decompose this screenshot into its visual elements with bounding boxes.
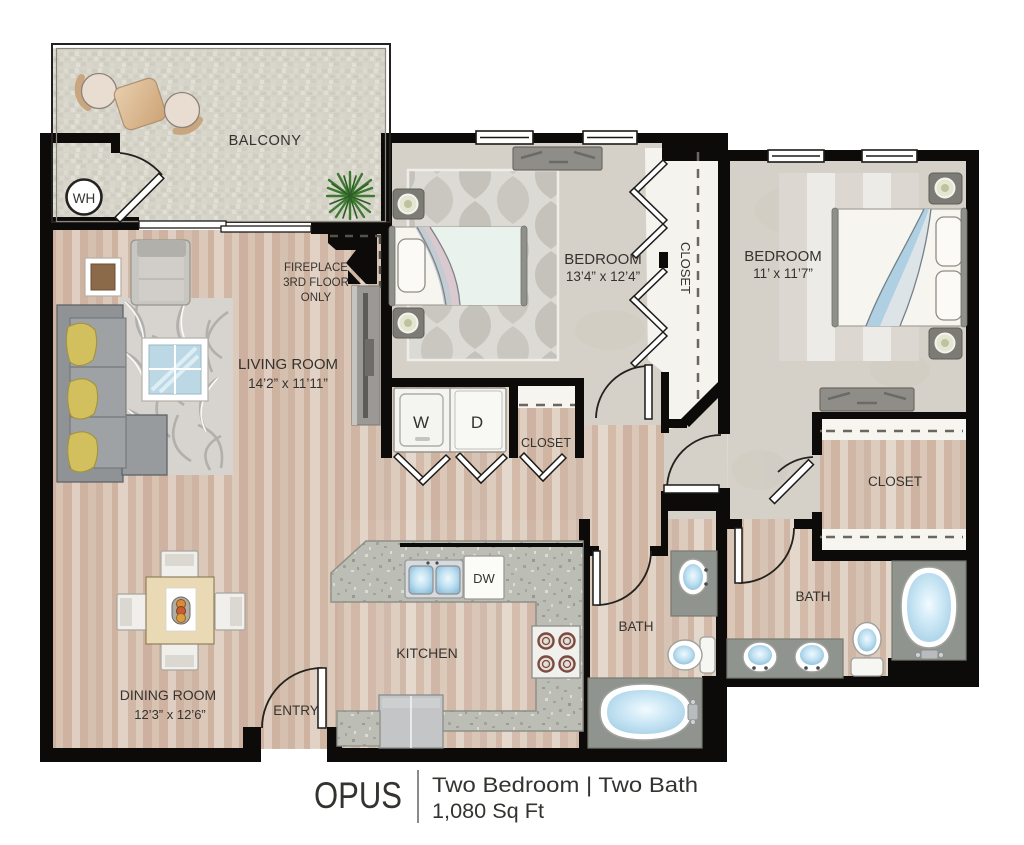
svg-text:BATH: BATH bbox=[618, 619, 653, 634]
svg-text:BEDROOM: BEDROOM bbox=[744, 248, 822, 265]
svg-text:CLOSET: CLOSET bbox=[868, 474, 922, 489]
svg-text:11’ x 11’7”: 11’ x 11’7” bbox=[753, 266, 813, 281]
svg-text:CLOSET: CLOSET bbox=[521, 436, 571, 450]
svg-text:FIREPLACE: FIREPLACE bbox=[284, 262, 348, 274]
svg-text:WH: WH bbox=[73, 191, 96, 206]
svg-text:1,080 Sq Ft: 1,080 Sq Ft bbox=[432, 799, 544, 823]
svg-text:14’2” x 11’11”: 14’2” x 11’11” bbox=[248, 376, 328, 391]
svg-text:BALCONY: BALCONY bbox=[229, 133, 302, 149]
svg-text:Two Bedroom | Two Bath: Two Bedroom | Two Bath bbox=[432, 773, 698, 797]
svg-text:13’4” x 12’4”: 13’4” x 12’4” bbox=[566, 269, 640, 284]
svg-text:CLOSET: CLOSET bbox=[678, 242, 693, 294]
svg-text:DW: DW bbox=[473, 571, 495, 586]
svg-text:OPUS: OPUS bbox=[314, 775, 402, 816]
svg-text:DINING ROOM: DINING ROOM bbox=[120, 687, 216, 703]
svg-text:ONLY: ONLY bbox=[301, 292, 332, 304]
svg-text:W: W bbox=[413, 413, 429, 432]
svg-text:3RD FLOOR: 3RD FLOOR bbox=[283, 277, 349, 289]
svg-text:12’3” x 12’6”: 12’3” x 12’6” bbox=[134, 707, 206, 722]
svg-text:BEDROOM: BEDROOM bbox=[564, 251, 642, 268]
svg-text:D: D bbox=[471, 413, 483, 432]
svg-text:LIVING ROOM: LIVING ROOM bbox=[238, 356, 338, 373]
svg-text:KITCHEN: KITCHEN bbox=[396, 645, 457, 661]
svg-text:ENTRY: ENTRY bbox=[273, 703, 319, 718]
svg-text:BATH: BATH bbox=[795, 589, 830, 604]
